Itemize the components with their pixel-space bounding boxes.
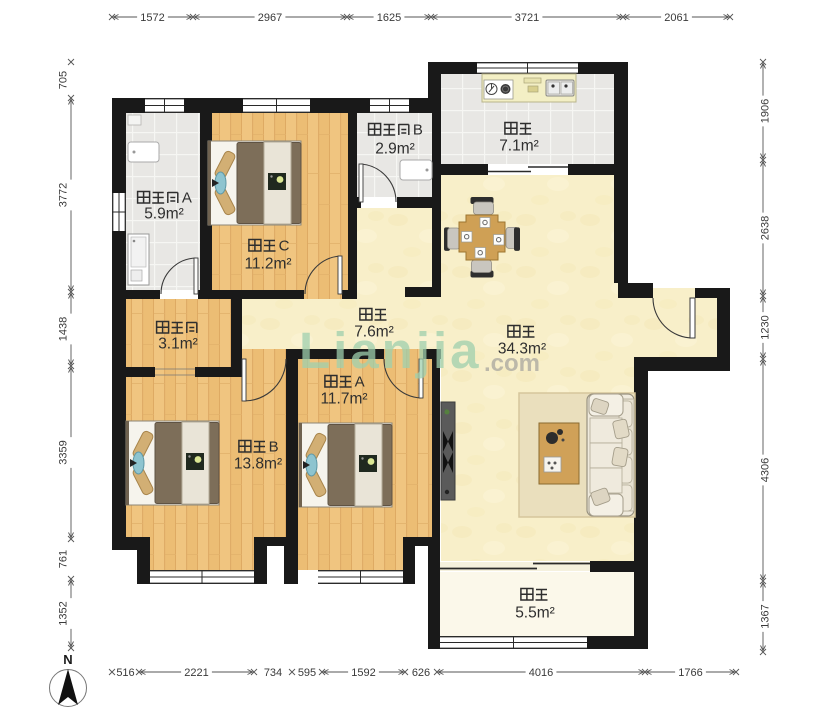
svg-text:A: A [355,374,365,391]
svg-text:516: 516 [116,667,134,679]
svg-text:4016: 4016 [529,667,553,679]
svg-text:A: A [182,190,192,207]
svg-text:626: 626 [412,667,430,679]
svg-text:1352: 1352 [58,601,70,625]
svg-text:3721: 3721 [515,12,539,24]
svg-text:1438: 1438 [58,317,70,341]
svg-text:2061: 2061 [664,12,688,24]
svg-text:1230: 1230 [760,315,772,339]
svg-text:5.5m²: 5.5m² [515,605,555,622]
svg-text:2221: 2221 [184,667,208,679]
svg-text:705: 705 [58,71,70,89]
svg-text:B: B [269,439,279,456]
svg-text:1906: 1906 [760,99,772,123]
svg-text:761: 761 [58,550,70,568]
svg-text:3359: 3359 [58,440,70,464]
svg-text:N: N [63,652,72,667]
svg-text:2.9m²: 2.9m² [375,141,415,158]
svg-text:1367: 1367 [760,604,772,628]
svg-text:3.1m²: 3.1m² [158,336,198,353]
svg-text:4306: 4306 [760,458,772,482]
svg-text:1592: 1592 [351,667,375,679]
svg-text:7.6m²: 7.6m² [354,324,394,341]
svg-text:7.1m²: 7.1m² [499,138,539,155]
svg-text:1766: 1766 [678,667,702,679]
svg-text:1625: 1625 [377,12,401,24]
svg-text:734: 734 [264,667,282,679]
svg-text:2638: 2638 [760,216,772,240]
svg-text:595: 595 [298,667,316,679]
svg-text:11.7m²: 11.7m² [320,391,367,408]
svg-text:C: C [279,238,290,255]
svg-text:11.2m²: 11.2m² [244,256,291,273]
svg-text:3772: 3772 [58,183,70,207]
svg-text:B: B [413,122,423,139]
svg-text:1572: 1572 [140,12,164,24]
svg-text:13.8m²: 13.8m² [234,456,282,473]
svg-text:2967: 2967 [258,12,282,24]
svg-text:34.3m²: 34.3m² [498,341,546,358]
svg-text:5.9m²: 5.9m² [144,206,184,223]
